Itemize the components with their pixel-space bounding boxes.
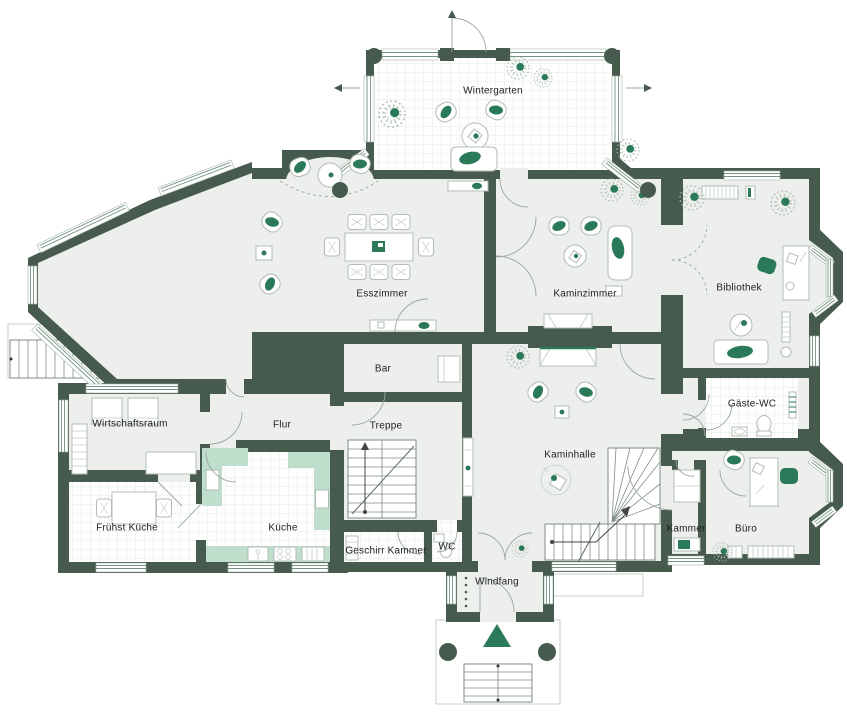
breakfast-table [112, 492, 156, 524]
room-label-gaeste-wc: Gäste-WC [728, 399, 776, 410]
buero-desk [750, 458, 778, 506]
floor-plan-canvas [0, 0, 847, 721]
room-label-flur: Flur [273, 420, 291, 431]
rear-terrace [545, 574, 643, 596]
bookshelf [702, 186, 738, 199]
bar-counter [438, 356, 460, 382]
room-label-buero: Büro [735, 524, 757, 535]
room-label-esszimmer: Esszimmer [356, 289, 407, 300]
room-label-fruehst-kueche: Frühst Küche [96, 523, 158, 534]
stairs-treppe [348, 440, 416, 518]
front-steps [464, 664, 532, 702]
floor-plan: Wintergarten Esszimmer Kaminzimmer Bibli… [0, 0, 847, 721]
room-label-wirtschaftsraum: Wirtschaftsraum [92, 419, 167, 430]
room-label-kueche: Küche [268, 523, 297, 534]
room-label-bar: Bar [375, 364, 391, 375]
room-label-wc: WC [438, 542, 455, 553]
room-label-windfang: Windfang [475, 577, 519, 588]
room-label-kammer: Kammer [667, 524, 706, 535]
room-label-bibliothek: Bibliothek [716, 283, 761, 294]
room-label-wintergarten: Wintergarten [463, 86, 523, 97]
room-label-treppe: Treppe [370, 421, 403, 432]
room-label-geschirr-kammer: Geschirr Kammer [345, 546, 426, 557]
buero-chair [780, 468, 798, 484]
drying-rack [72, 424, 87, 474]
room-label-kaminhalle: Kaminhalle [544, 450, 595, 461]
buero-shelf [748, 546, 794, 558]
furniture-bar [438, 356, 460, 382]
toilet [757, 416, 771, 433]
room-label-kaminzimmer: Kaminzimmer [553, 289, 616, 300]
